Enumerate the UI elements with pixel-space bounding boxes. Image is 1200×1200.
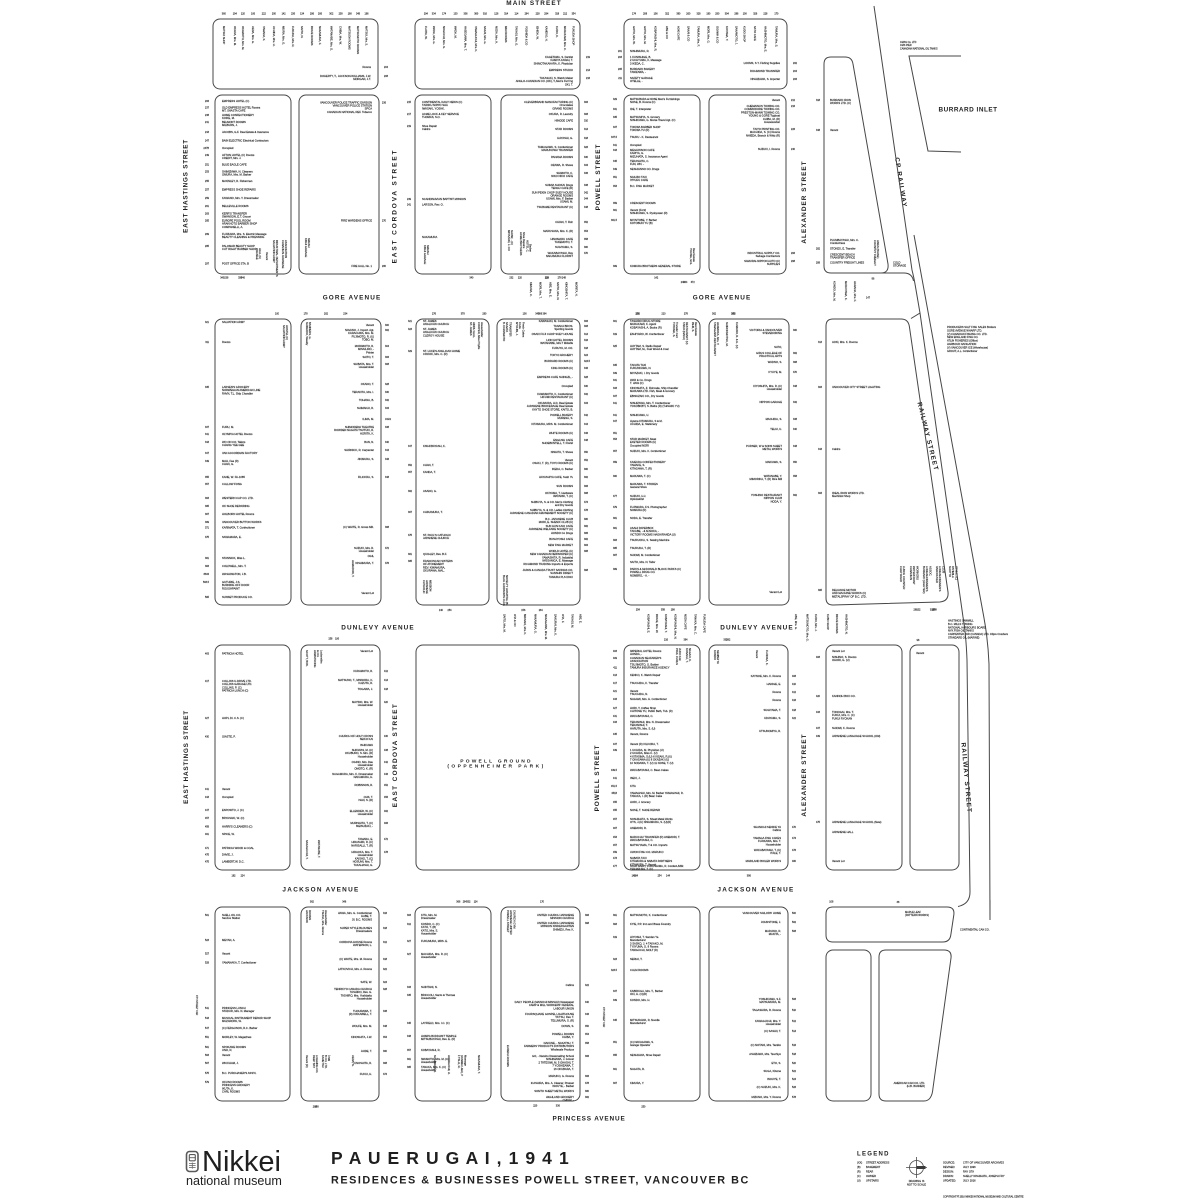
svg-text:330: 330 xyxy=(584,156,589,159)
svg-text:217: 217 xyxy=(407,113,412,116)
svg-text:345: 345 xyxy=(613,1019,618,1022)
svg-text:374: 374 xyxy=(383,1073,388,1076)
svg-text:VANCOUVER CITY STREET LIGHTING: VANCOUVER CITY STREET LIGHTING xyxy=(832,385,880,389)
svg-text:COLDWELL, Mrs. T.: COLDWELL, Mrs. T. xyxy=(222,564,247,568)
svg-text:378: 378 xyxy=(584,509,589,512)
svg-text:RICHMOND TRANSFER: RICHMOND TRANSFER xyxy=(750,69,780,73)
svg-text:TAKAHASHI, G.: TAKAHASHI, G. xyxy=(354,863,374,867)
svg-text:PRODUCERS SALT FISH SALES Bro: PRODUCERS SALT FISH SALES Brokers xyxy=(947,325,997,329)
svg-text:327: 327 xyxy=(407,940,412,943)
svg-text:ITALE, T.: ITALE, T. xyxy=(770,851,781,855)
svg-text:335: 335 xyxy=(613,116,618,119)
svg-text:439: 439 xyxy=(816,735,821,738)
svg-text:194: 194 xyxy=(634,875,639,878)
svg-text:HIFUMI RESTAURANT (U): HIFUMI RESTAURANT (U) xyxy=(541,395,574,399)
svg-text:366: 366 xyxy=(585,1075,590,1078)
svg-text:TENGU CAFE (R): TENGU CAFE (R) xyxy=(551,186,573,190)
svg-text:SATO CAFE: SATO CAFE xyxy=(753,26,757,41)
svg-text:OKI, H. (C)(R): OKI, H. (C)(R) xyxy=(630,992,647,996)
svg-text:Rooms: Rooms xyxy=(772,698,781,702)
svg-text:206: 206 xyxy=(793,78,798,81)
svg-text:411: 411 xyxy=(613,667,617,670)
svg-text:UPSTAIRS: UPSTAIRS xyxy=(866,1179,879,1183)
svg-text:CALM ROOMS: CALM ROOMS xyxy=(630,968,649,972)
svg-text:WORKERS: WORKERS xyxy=(915,566,919,580)
svg-text:158: 158 xyxy=(328,638,333,641)
svg-text:UEDA, Mrs. G.: UEDA, Mrs. G. xyxy=(251,26,255,44)
svg-text:192: 192 xyxy=(636,313,641,316)
svg-text:JACKSON AVENUE: JACKSON AVENUE xyxy=(282,886,359,893)
svg-text:430: 430 xyxy=(384,735,389,738)
svg-text:Householder: Householder xyxy=(359,549,374,553)
svg-text:CHANG YEE GEE: CHANG YEE GEE xyxy=(222,443,244,447)
svg-text:BURRARD INLET: BURRARD INLET xyxy=(938,107,997,114)
svg-text:MUZAROPA, W.: MUZAROPA, W. xyxy=(222,1019,242,1023)
svg-text:SHIOMI, K. Rooms: SHIOMI, K. Rooms xyxy=(832,726,856,730)
svg-text:SHIRNICK, R. Carpenter: SHIRNICK, R. Carpenter xyxy=(344,448,374,452)
svg-text:362: 362 xyxy=(793,352,798,355)
svg-text:178: 178 xyxy=(304,313,309,316)
svg-text:JAPANESE WELFARE SOCIETY (U): JAPANESE WELFARE SOCIETY (U) xyxy=(529,527,574,531)
svg-text:GOTO, Mrs. W.: GOTO, Mrs. W. xyxy=(632,26,636,45)
svg-text:YAMADA, K.: YAMADA, K. xyxy=(262,26,266,41)
svg-text:ASHIZAWA, Mrs. Tsuchiyo: ASHIZAWA, Mrs. Tsuchiyo xyxy=(749,1052,781,1056)
svg-text:380: 380 xyxy=(676,13,681,16)
svg-text:344: 344 xyxy=(683,281,688,284)
svg-text:318: 318 xyxy=(555,13,560,16)
svg-text:T. HAW (C): T. HAW (C) xyxy=(630,381,644,385)
svg-text:Cabins: Cabins xyxy=(566,983,575,987)
svg-text:274: 274 xyxy=(933,609,938,612)
svg-text:OTELLE, -: OTELLE, - xyxy=(630,79,643,83)
svg-text:Householder: Householder xyxy=(766,842,781,846)
svg-text:STORAGE: STORAGE xyxy=(893,264,906,268)
svg-text:CHIBA, Mrs. W.: CHIBA, Mrs. W. xyxy=(339,26,343,45)
svg-text:358: 358 xyxy=(585,1042,590,1045)
svg-text:KYUYE, M.: KYUYE, M. xyxy=(768,370,782,374)
svg-text:522: 522 xyxy=(792,1070,797,1073)
svg-text:KINOSHITA, J.W.: KINOSHITA, J.W. xyxy=(351,1035,372,1039)
svg-text:403: 403 xyxy=(205,653,210,656)
svg-text:(C) WAITE, Mrs. M. Rooms: (C) WAITE, Mrs. M. Rooms xyxy=(339,957,372,961)
svg-text:CHIBA, Y.: CHIBA, Y. xyxy=(562,1035,574,1039)
svg-text:SUGIWARA, I.: SUGIWARA, I. xyxy=(433,1055,437,1073)
svg-text:SOMTO SHEET METAL WORKS: SOMTO SHEET METAL WORKS xyxy=(534,1089,574,1093)
svg-text:330: 330 xyxy=(385,391,390,394)
svg-text:510: 510 xyxy=(792,1009,797,1012)
svg-text:361.5: 361.5 xyxy=(611,219,618,222)
svg-text:NIPPON GARAGE: NIPPON GARAGE xyxy=(759,400,782,404)
svg-text:CARL ROOMS: CARL ROOMS xyxy=(222,1090,240,1094)
svg-text:579: 579 xyxy=(205,1081,210,1084)
svg-text:353: 353 xyxy=(613,185,618,188)
svg-text:285: 285 xyxy=(205,245,210,248)
svg-text:Vacant: Vacant xyxy=(222,952,230,956)
svg-text:ABE & CO: ABE & CO xyxy=(665,26,669,39)
svg-text:335: 335 xyxy=(613,364,618,367)
svg-text:215: 215 xyxy=(407,101,412,104)
svg-text:TAKAGI, Mrs. G.: TAKAGI, Mrs. G. xyxy=(514,26,518,46)
svg-text:350: 350 xyxy=(584,451,589,454)
svg-text:435: 435 xyxy=(613,733,618,736)
svg-text:294: 294 xyxy=(544,13,549,16)
svg-text:239: 239 xyxy=(407,198,412,201)
svg-text:512: 512 xyxy=(792,1020,797,1023)
svg-text:263: 263 xyxy=(205,213,210,216)
svg-text:523: 523 xyxy=(205,939,210,942)
svg-text:MATSUDA ROOMS: MATSUDA ROOMS xyxy=(348,26,352,50)
svg-text:321: 321 xyxy=(205,321,210,324)
svg-text:357: 357 xyxy=(407,1049,412,1052)
svg-text:NAKAMURA, H.: NAKAMURA, H. xyxy=(354,775,374,779)
svg-text:216: 216 xyxy=(664,639,669,642)
svg-text:334: 334 xyxy=(432,13,437,16)
svg-text:NARISALLI, T. (R): NARISALLI, T. (R) xyxy=(351,843,373,847)
svg-text:SATE, W.: SATE, W. xyxy=(361,980,373,984)
svg-text:455: 455 xyxy=(613,809,618,812)
svg-text:TAMURA PLS DNCI: TAMURA PLS DNCI xyxy=(549,575,573,579)
svg-text:381: 381 xyxy=(205,557,210,560)
svg-text:OF B.C. (C): OF B.C. (C) xyxy=(954,566,958,580)
svg-text:TRANSFER OFFICE: TRANSFER OFFICE xyxy=(830,256,855,260)
svg-text:Rooms: Rooms xyxy=(362,65,371,69)
svg-text:Vacant (R): Vacant (R) xyxy=(305,1055,309,1068)
svg-text:341: 341 xyxy=(613,414,618,417)
svg-text:LARSON, Rev. O.: LARSON, Rev. O. xyxy=(422,203,444,207)
svg-text:350: 350 xyxy=(585,1025,590,1028)
svg-text:(B): (B) xyxy=(857,1165,861,1169)
svg-text:ISEKI, J.: ISEKI, J. xyxy=(630,776,641,780)
svg-text:SHOW, - (C): SHOW, - (C) xyxy=(510,230,514,245)
svg-text:B.C. MILLS TOWING: B.C. MILLS TOWING xyxy=(948,622,973,626)
svg-text:365: 365 xyxy=(407,1066,412,1069)
svg-text:KARIMATA, T. Confectioner: KARIMATA, T. Confectioner xyxy=(222,526,255,530)
svg-text:398: 398 xyxy=(584,569,589,572)
svg-text:385: 385 xyxy=(613,547,618,550)
svg-text:Locksmiths: Locksmiths xyxy=(319,650,323,664)
svg-text:ABE, Mrs. E.: ABE, Mrs. E. xyxy=(548,282,552,298)
svg-text:VAN ACCORDIAN FACTORY: VAN ACCORDIAN FACTORY xyxy=(222,451,258,455)
svg-text:INDUSTRIAL DEPARTMENTS: INDUSTRIAL DEPARTMENTS xyxy=(275,240,279,277)
svg-text:MARUSANA, Mrs. K. (R): MARUSANA, Mrs. K. (R) xyxy=(543,229,573,233)
svg-text:(C) SASHII, T.: (C) SASHII, T. xyxy=(764,1029,781,1033)
svg-text:Occupied: Occupied xyxy=(630,143,642,147)
svg-text:DUNLEVY AVENUE: DUNLEVY AVENUE xyxy=(341,624,415,631)
svg-text:INOUE ROOMS: INOUE ROOMS xyxy=(310,26,314,46)
svg-text:MT. SHASTA CAFE: MT. SHASTA CAFE xyxy=(222,109,246,113)
svg-text:MORLEY, W. Magazines: MORLEY, W. Magazines xyxy=(222,1035,252,1039)
svg-text:Rooms: Rooms xyxy=(772,690,781,694)
svg-text:265: 265 xyxy=(205,220,210,223)
svg-text:PRACTICAL ARTS: PRACTICAL ARTS xyxy=(759,354,782,358)
svg-text:SEIKO KAI: SEIKO KAI xyxy=(360,737,374,741)
svg-text:Salvage Contractors: Salvage Contractors xyxy=(756,254,781,258)
svg-text:NISHITA, T. Shoes: NISHITA, T. Shoes xyxy=(551,450,574,454)
svg-text:240: 240 xyxy=(791,148,796,151)
svg-text:LOGGING CO.: LOGGING CO. xyxy=(315,1055,319,1073)
svg-text:FILICKRA, S.: FILICKRA, S. xyxy=(358,475,374,479)
svg-text:GRAND ROOMS: GRAND ROOMS xyxy=(552,106,573,110)
svg-text:SOURCE:: SOURCE: xyxy=(943,1161,955,1165)
svg-text:352: 352 xyxy=(584,459,589,462)
svg-text:342: 342 xyxy=(584,192,589,195)
svg-text:380: 380 xyxy=(584,518,589,521)
svg-text:362: 362 xyxy=(793,494,798,497)
svg-text:475: 475 xyxy=(816,821,821,824)
svg-text:NISHIKAWA, G. Morse Travel Ag: NISHIKAWA, G. Morse Travel Agt. (C) xyxy=(630,118,675,122)
svg-text:575: 575 xyxy=(205,1072,210,1075)
svg-text:290: 290 xyxy=(715,13,720,16)
svg-text:343: 343 xyxy=(818,448,823,451)
svg-text:395: 395 xyxy=(818,589,823,592)
svg-text:372: 372 xyxy=(385,547,390,550)
svg-text:387: 387 xyxy=(613,554,618,557)
svg-text:310: 310 xyxy=(584,120,589,123)
svg-text:ROOMS: ROOMS xyxy=(308,910,312,920)
svg-text:POWELL GROUND: POWELL GROUND xyxy=(460,759,533,765)
svg-text:HORIGUCHI, H.: HORIGUCHI, H. xyxy=(447,1055,451,1075)
svg-text:286: 286 xyxy=(734,13,739,16)
svg-text:SENBEI YA: SENBEI YA xyxy=(716,650,720,664)
svg-text:301: 301 xyxy=(613,320,618,323)
svg-text:SESHIHNSO CO. Drugs: SESHIHNSO CO. Drugs xyxy=(630,167,660,171)
svg-text:JULY 2016: JULY 2016 xyxy=(963,1179,976,1183)
svg-text:ANEMORI, R.: ANEMORI, R. xyxy=(630,826,647,830)
svg-text:Vacant Lot: Vacant Lot xyxy=(361,591,374,595)
svg-text:LATKOVICH, Mrs. A. Rooms: LATKOVICH, Mrs. A. Rooms xyxy=(338,967,373,971)
svg-text:Occupied: Occupied xyxy=(222,795,234,799)
svg-text:374: 374 xyxy=(584,501,589,504)
svg-text:SAITO, N.: SAITO, N. xyxy=(300,26,304,38)
svg-text:GOTO, Mrs. M.: GOTO, Mrs. M. xyxy=(643,26,647,45)
svg-text:341: 341 xyxy=(613,402,618,405)
svg-text:KITAGAWA, T. (R): KITAGAWA, T. (R) xyxy=(630,466,652,470)
svg-text:280: 280 xyxy=(382,265,387,268)
svg-text:Manufacturer: Manufacturer xyxy=(630,1021,646,1025)
svg-text:NOSE, B. Rooms (C): NOSE, B. Rooms (C) xyxy=(630,100,655,104)
svg-text:TRANSFER: TRANSFER xyxy=(508,322,512,337)
svg-text:306: 306 xyxy=(464,13,469,16)
svg-text:Householder: Householder xyxy=(358,703,373,707)
svg-text:ASSOCIATION: ASSOCIATION xyxy=(284,240,288,258)
svg-text:STANDARD OIL (MARINE): STANDARD OIL (MARINE) xyxy=(948,636,980,640)
svg-text:KAYNOE, Mrs. K. Rooms: KAYNOE, Mrs. K. Rooms xyxy=(751,674,782,678)
svg-text:408: 408 xyxy=(816,656,821,659)
svg-text:JUDO KAI: JUDO KAI xyxy=(678,648,682,661)
svg-text:FUKUDA, Mrs. R.: FUKUDA, Mrs. R. xyxy=(291,26,295,47)
svg-text:230: 230 xyxy=(291,13,296,16)
svg-text:408: 408 xyxy=(792,675,797,678)
svg-text:422: 422 xyxy=(792,717,797,720)
svg-text:FUKUI, H.: FUKUI, H. xyxy=(360,1072,372,1076)
svg-text:IYPUHU CAFE: IYPUHU CAFE xyxy=(630,178,648,182)
svg-text:NISHIMURA, R.: NISHIMURA, R. xyxy=(630,49,650,53)
svg-text:302: 302 xyxy=(329,13,334,16)
svg-text:362: 362 xyxy=(310,901,315,904)
svg-text:363: 363 xyxy=(818,492,823,495)
svg-text:UWON FISH CO. MARUKO: UWON FISH CO. MARUKO xyxy=(630,850,663,854)
svg-text:AOKI CAFE: AOKI CAFE xyxy=(676,26,680,41)
svg-text:STAR ROOMS: STAR ROOMS xyxy=(555,127,573,131)
svg-text:380: 380 xyxy=(585,1090,590,1093)
svg-text:EMPRESS STUDIO: EMPRESS STUDIO xyxy=(549,68,573,72)
svg-text:NOMBRO, - A. -: NOMBRO, - A. - xyxy=(630,573,649,577)
svg-text:SESHIHWA, Shoe Repair: SESHIHWA, Shoe Repair xyxy=(630,1053,661,1057)
svg-text:354: 354 xyxy=(584,230,589,233)
svg-text:ESHIYARO, W. Confectioner: ESHIYARO, W. Confectioner xyxy=(630,332,664,336)
svg-text:160: 160 xyxy=(348,13,353,16)
svg-text:COUNTRY FREIGHT LINES: COUNTRY FREIGHT LINES xyxy=(830,261,864,265)
svg-text:Householder: Householder xyxy=(421,955,436,959)
svg-text:438: 438 xyxy=(384,749,389,752)
svg-text:VICTORY ROOMS NAGHIRANDA (U): VICTORY ROOMS NAGHIRANDA (U) xyxy=(630,532,676,536)
svg-text:(C) FERGUSON, R.C. Barber: (C) FERGUSON, R.C. Barber xyxy=(222,1026,257,1030)
svg-text:OZAWA, R. Shoes: OZAWA, R. Shoes xyxy=(551,163,574,167)
svg-text:388: 388 xyxy=(584,550,589,553)
svg-text:360: 360 xyxy=(793,329,798,332)
svg-text:WADA, M.: WADA, M. xyxy=(454,26,458,39)
svg-text:NOT TO SCALE: NOT TO SCALE xyxy=(907,1182,926,1186)
svg-text:Conductress: Conductress xyxy=(830,241,846,245)
svg-text:341: 341 xyxy=(613,144,618,147)
svg-text:174: 174 xyxy=(442,13,447,16)
svg-text:KISHKBAYASH, K.: KISHKBAYASH, K. xyxy=(423,444,446,448)
svg-text:323: 323 xyxy=(613,958,618,961)
svg-text:551: 551 xyxy=(205,1036,210,1039)
svg-text:KITA: KITA xyxy=(630,784,636,788)
svg-text:348: 348 xyxy=(793,385,798,388)
svg-text:Sporting Goods: Sporting Goods xyxy=(554,327,573,331)
svg-text:362: 362 xyxy=(712,313,717,316)
svg-text:OKURA, R. Laundry: OKURA, R. Laundry xyxy=(549,112,574,116)
svg-text:Service Station: Service Station xyxy=(222,916,241,920)
svg-text:DESIGN:: DESIGN: xyxy=(943,1170,954,1174)
svg-text:SHIMIZU, Rev. K.: SHIMIZU, Rev. K. xyxy=(553,927,574,931)
svg-text:NAGAO, K.: NAGAO, K. xyxy=(688,648,692,662)
svg-text:MILBURN, J.: MILBURN, J. xyxy=(222,123,238,127)
svg-text:563: 563 xyxy=(205,1054,210,1057)
svg-text:Cabins: Cabins xyxy=(832,447,841,451)
svg-text:KOBAYASHI, A. Books (R): KOBAYASHI, A. Books (R) xyxy=(630,325,662,329)
svg-text:OLYMPIA HOTEL Rooms: OLYMPIA HOTEL Rooms xyxy=(222,432,253,436)
svg-text:237: 237 xyxy=(205,107,210,110)
svg-text:EAST CORDOVA STREET: EAST CORDOVA STREET xyxy=(392,703,399,807)
svg-text:Machinist Shop: Machinist Shop xyxy=(832,494,851,498)
svg-text:514: 514 xyxy=(792,1030,797,1033)
svg-text:KUMANO, R. & H. (U): KUMANO, R. & H. (U) xyxy=(735,322,739,349)
svg-text:Vacant: Vacant xyxy=(366,323,374,327)
svg-text:318: 318 xyxy=(383,958,388,961)
svg-text:CHIAN, T. Fish: CHIAN, T. Fish xyxy=(555,220,573,224)
svg-text:REVISED:: REVISED: xyxy=(943,1165,955,1169)
svg-text:254: 254 xyxy=(448,609,453,612)
svg-text:KOBAYASHI, Mrs. R.: KOBAYASHI, Mrs. R. xyxy=(654,26,658,52)
svg-text:156: 156 xyxy=(521,609,526,612)
svg-text:541: 541 xyxy=(205,1007,210,1010)
svg-text:KUDO SHOP: KUDO SHOP xyxy=(743,26,747,42)
svg-text:377: 377 xyxy=(613,495,618,498)
svg-text:KOIKE, M.: KOIKE, M. xyxy=(222,116,235,120)
svg-text:358: 358 xyxy=(793,475,798,478)
svg-text:ISHII, S. (R): ISHII, S. (R) xyxy=(359,798,374,802)
svg-text:MEYAN, A.: MEYAN, A. xyxy=(222,938,235,942)
svg-text:MATSUMOTO, K. Confectioner: MATSUMOTO, K. Confectioner xyxy=(630,913,667,917)
svg-text:344: 344 xyxy=(584,198,589,201)
svg-text:SUGA, Kitume: SUGA, Kitume xyxy=(764,1069,782,1073)
svg-text:338: 338 xyxy=(383,1010,388,1013)
svg-text:TANIZAWA, -: TANIZAWA, - xyxy=(630,70,646,74)
svg-text:HINDU HALL: HINDU HALL xyxy=(472,322,476,338)
svg-text:420: 420 xyxy=(384,701,389,704)
svg-text:OTA & CO: OTA & CO xyxy=(513,614,517,627)
svg-text:323: 323 xyxy=(408,328,413,331)
svg-text:360: 360 xyxy=(613,475,618,478)
svg-text:355: 355 xyxy=(205,476,210,479)
svg-text:340: 340 xyxy=(585,1001,590,1004)
svg-text:220: 220 xyxy=(518,277,523,280)
svg-text:501: 501 xyxy=(205,914,210,917)
svg-text:SMASH: SMASH xyxy=(426,245,430,255)
svg-text:Wholesale Produce: Wholesale Produce xyxy=(551,1047,575,1051)
svg-text:WATANABE, T.: WATANABE, T. xyxy=(317,840,321,858)
svg-text:190: 190 xyxy=(706,13,711,16)
svg-text:SHIMOTAKAHARA, K. Physician: SHIMOTAKAHARA, K. Physician xyxy=(534,61,574,65)
svg-text:437: 437 xyxy=(613,743,618,746)
svg-text:(C): (C) xyxy=(857,1174,861,1178)
svg-text:543: 543 xyxy=(205,1017,210,1020)
svg-text:370: 370 xyxy=(793,371,798,374)
svg-text:322: 322 xyxy=(585,984,590,987)
svg-text:Householder: Householder xyxy=(766,1022,781,1026)
svg-text:MATSUMOTO ROOMS: MATSUMOTO ROOMS xyxy=(356,26,360,54)
svg-text:MITSUBAYASHI, Rev. E. (R): MITSUBAYASHI, Rev. E. (R) xyxy=(421,1037,455,1041)
svg-text:SUPPLIES: SUPPLIES xyxy=(767,262,780,266)
svg-text:282: 282 xyxy=(816,248,821,251)
svg-text:COPYRIGHT © 2016 NIKKEI NATION: COPYRIGHT © 2016 NIKKEI NATIONAL MUSEUM … xyxy=(943,1196,1024,1199)
svg-text:364: 364 xyxy=(543,313,548,316)
svg-text:360: 360 xyxy=(474,13,479,16)
svg-text:457: 457 xyxy=(613,818,618,821)
svg-text:360: 360 xyxy=(222,13,227,16)
svg-text:national museum: national museum xyxy=(186,1174,282,1188)
svg-text:SWANSON, E.T. Grocer: SWANSON, E.T. Grocer xyxy=(222,215,251,219)
svg-text:4TH STREET CAR: 4TH STREET CAR xyxy=(195,995,198,1016)
svg-text:Vacant Lot: Vacant Lot xyxy=(832,649,845,653)
svg-text:369: 369 xyxy=(205,521,210,524)
svg-text:(R) KIKKAWELL, T.: (R) KIKKAWELL, T. xyxy=(349,1012,372,1016)
svg-text:SUN ROOMS: SUN ROOMS xyxy=(556,484,573,488)
svg-text:337: 337 xyxy=(613,990,618,993)
svg-text:FURUYA, M. CO.: FURUYA, M. CO. xyxy=(552,346,573,350)
svg-text:308: 308 xyxy=(385,363,390,366)
svg-text:343: 343 xyxy=(205,441,210,444)
svg-text:Vacant Lot: Vacant Lot xyxy=(832,859,845,863)
svg-text:(OPPENHEIMER PARK): (OPPENHEIMER PARK) xyxy=(447,764,545,770)
svg-text:SATO,: SATO, xyxy=(774,345,782,349)
svg-text:316: 316 xyxy=(383,912,388,915)
svg-text:INOUE, Mrs. W.: INOUE, Mrs. W. xyxy=(655,614,659,633)
svg-text:KANEKO, H.: KANEKO, H. xyxy=(544,26,548,42)
svg-text:HONDA, -: HONDA, - xyxy=(630,652,642,656)
svg-text:EAST CORDOVA STREET: EAST CORDOVA STREET xyxy=(392,149,399,264)
svg-text:MIMORIKA, T. (R) Rice Mill: MIMORIKA, T. (R) Rice Mill xyxy=(750,477,783,481)
svg-text:500: 500 xyxy=(792,912,797,915)
svg-text:(U): (U) xyxy=(857,1179,861,1183)
svg-text:MORI, E. SHENIX CLUB (U): MORI, E. SHENIX CLUB (U) xyxy=(539,520,573,524)
svg-text:393: 393 xyxy=(613,923,618,926)
svg-text:METALSPRAY OF B.C. LTD.: METALSPRAY OF B.C. LTD. xyxy=(832,594,867,598)
svg-text:418: 418 xyxy=(384,688,389,691)
